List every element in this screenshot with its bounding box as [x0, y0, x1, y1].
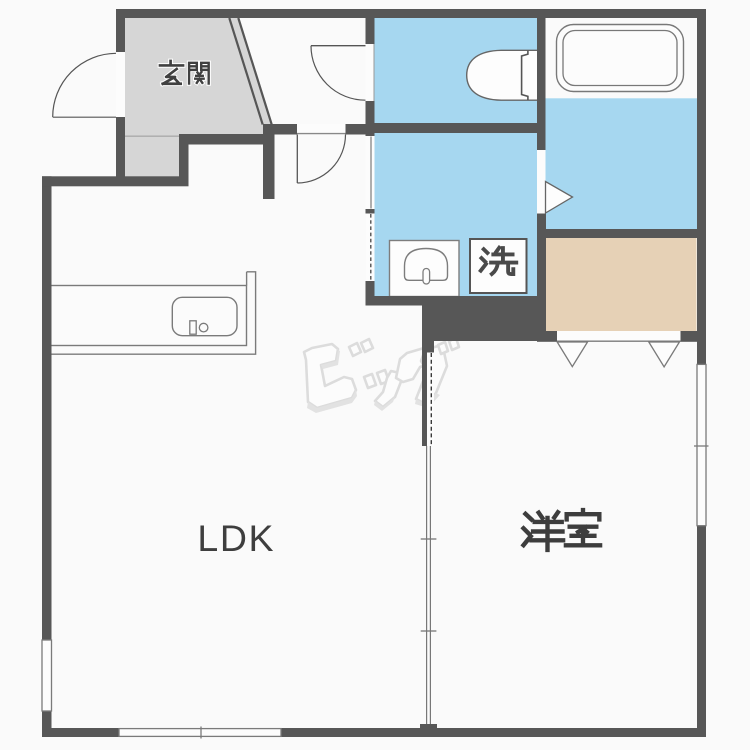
svg-text:LDK: LDK	[197, 517, 275, 559]
